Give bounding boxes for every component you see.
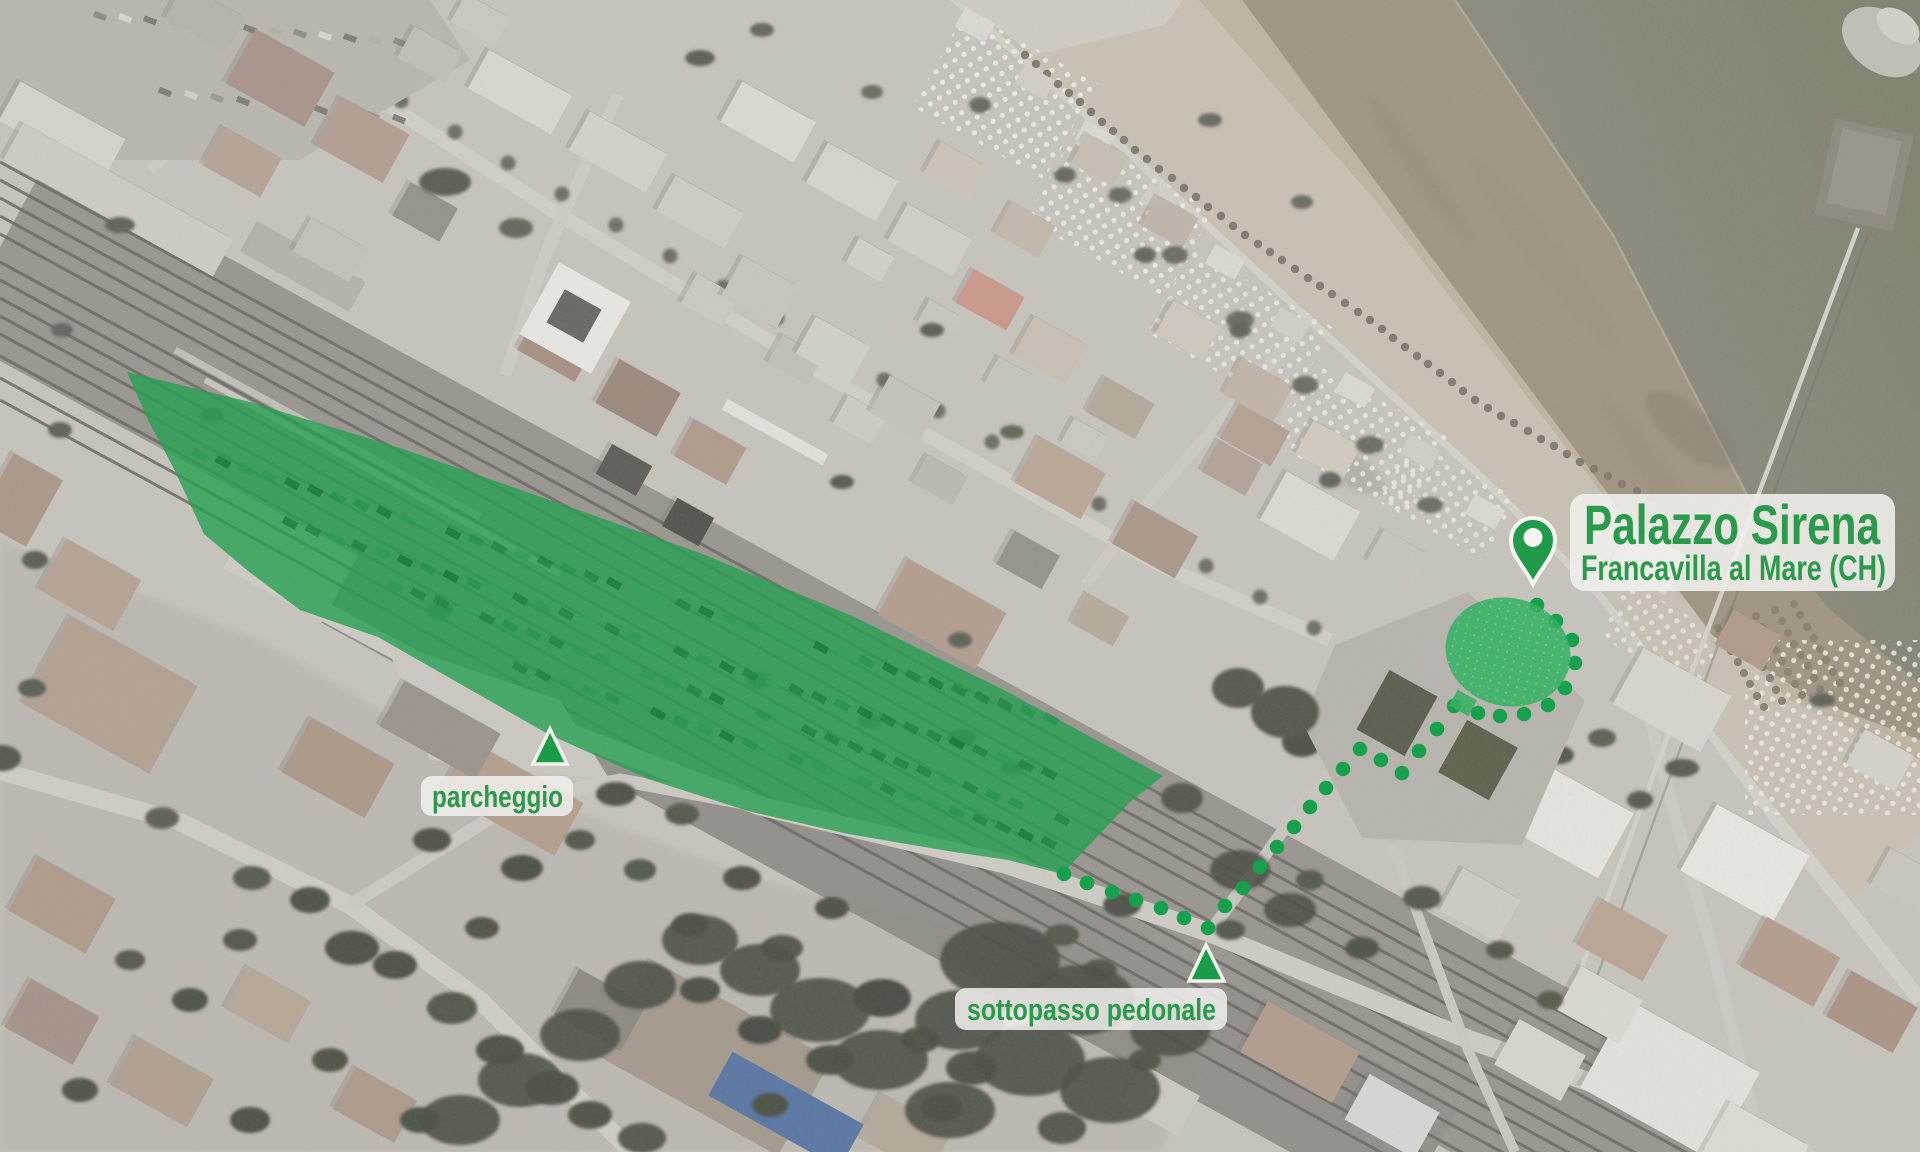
svg-text:sottopasso pedonale: sottopasso pedonale	[967, 992, 1216, 1027]
svg-text:Francavilla al Mare (CH): Francavilla al Mare (CH)	[1581, 549, 1886, 588]
svg-text:parcheggio: parcheggio	[432, 779, 563, 814]
svg-text:Palazzo Sirena: Palazzo Sirena	[1584, 493, 1881, 556]
